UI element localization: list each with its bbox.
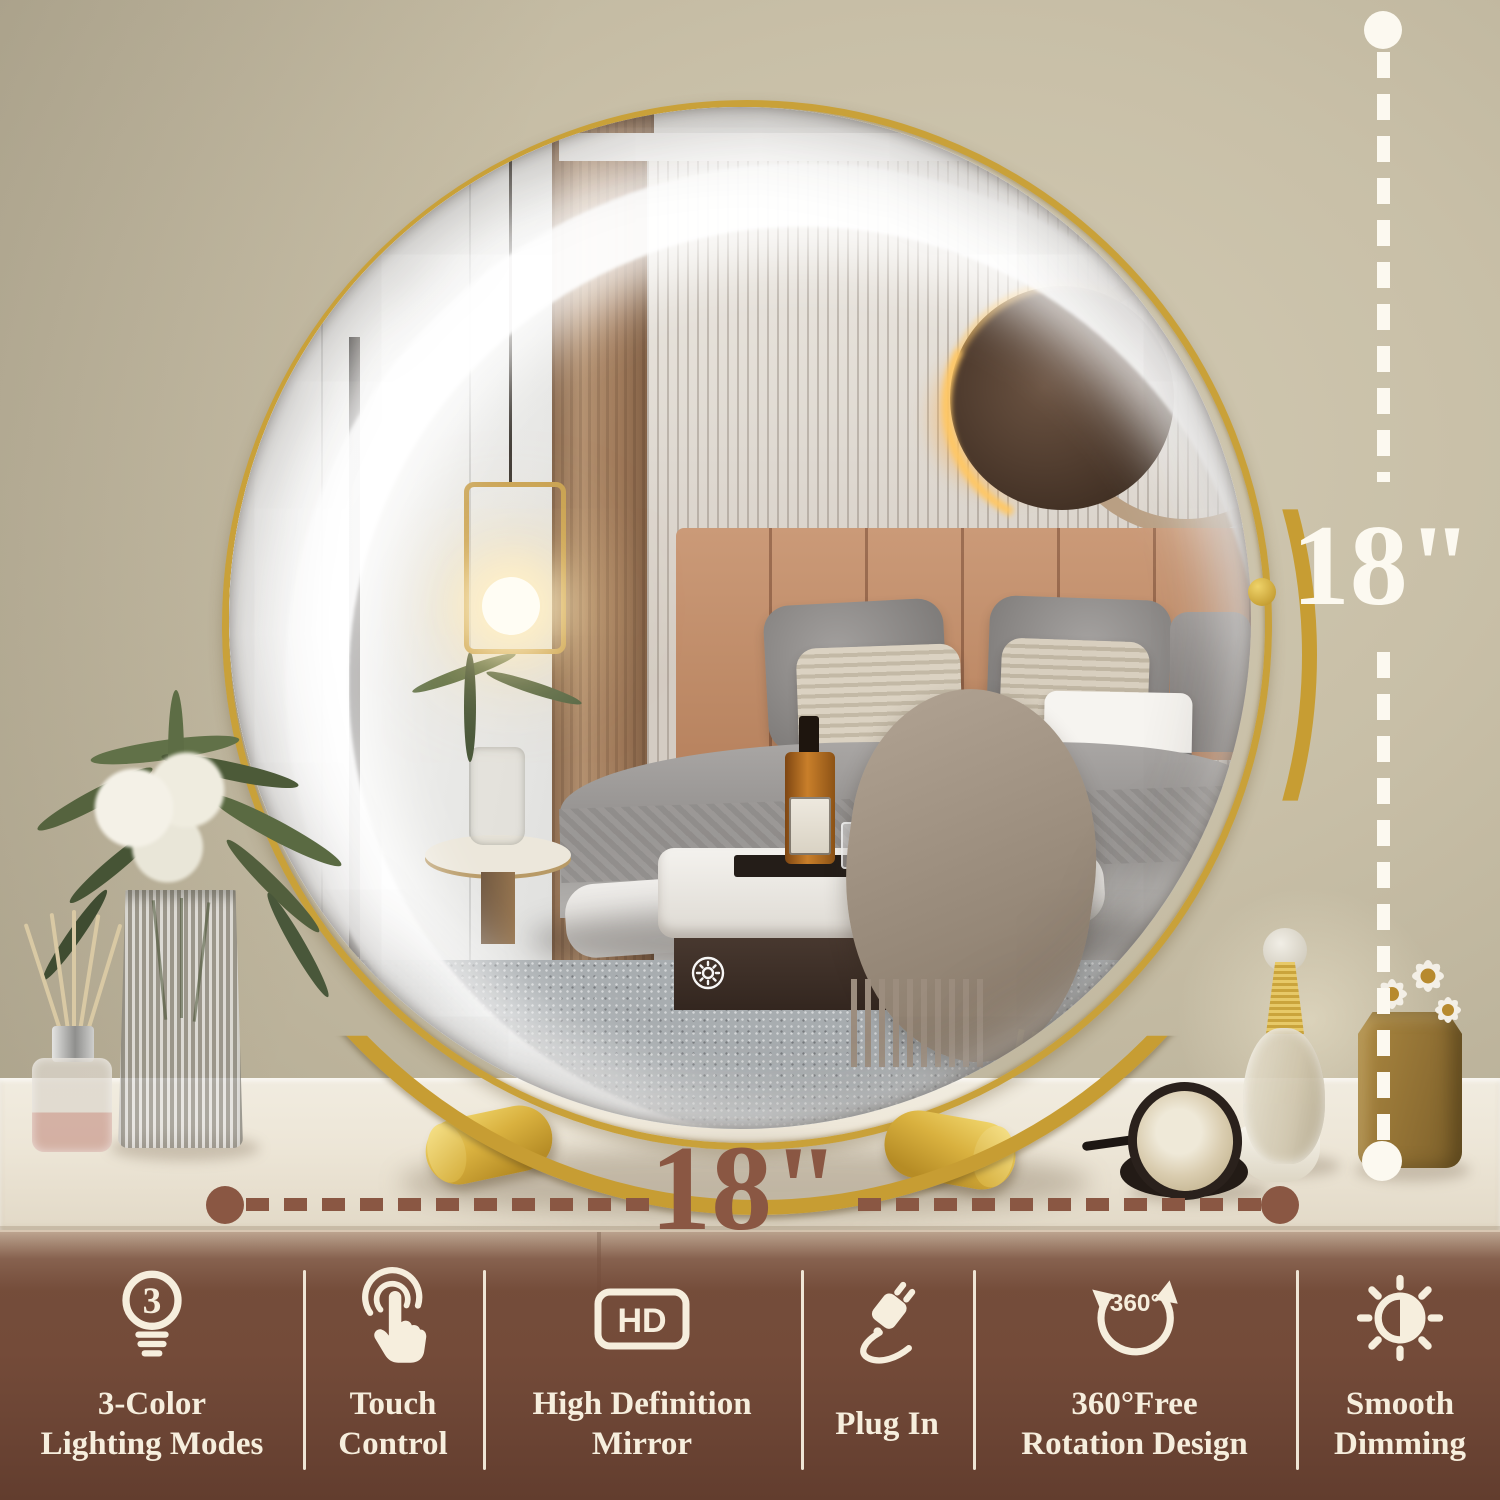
feature-divider xyxy=(483,1270,486,1470)
hd-text: HD xyxy=(617,1302,666,1340)
feature-touch-control: Touch Control xyxy=(311,1264,475,1492)
feature-label-line1: 3-Color xyxy=(41,1384,264,1424)
dimension-dash-bottom xyxy=(1377,652,1390,1140)
diffuser-reed xyxy=(72,910,76,1028)
bulb-3-modes-icon: 3 xyxy=(100,1264,204,1372)
dimension-endpoint-right xyxy=(1261,1186,1299,1224)
feature-label-line1: Plug In xyxy=(835,1404,939,1444)
bulb-count-text: 3 xyxy=(143,1281,162,1322)
feature-divider xyxy=(1296,1270,1299,1470)
feature-bar: 3 3-Color Lighting Modes Touch xyxy=(0,1232,1500,1500)
ribbed-glass-vase xyxy=(118,890,243,1148)
dimension-dash-top xyxy=(1377,52,1390,482)
feature-label-line1: Touch xyxy=(338,1384,447,1424)
dimension-endpoint-left xyxy=(206,1186,244,1224)
feature-plug-in: Plug In xyxy=(809,1264,965,1492)
power-plug-icon xyxy=(835,1264,939,1372)
feature-label-line2: Lighting Modes xyxy=(41,1424,264,1464)
glass-edge-shadow xyxy=(229,107,1251,1129)
reed-diffuser-jar xyxy=(32,1058,112,1152)
daisy-flowers xyxy=(1352,948,1470,1040)
rotation-degrees-text: 360° xyxy=(1109,1290,1160,1317)
touch-finger-icon xyxy=(341,1264,445,1372)
dimension-dash-left xyxy=(246,1198,652,1211)
flower-stem xyxy=(152,900,168,1020)
feature-divider xyxy=(303,1270,306,1470)
feature-label-line2: Dimming xyxy=(1334,1424,1466,1464)
feature-360-rotation: 360° 360°Free Rotation Design xyxy=(981,1264,1288,1492)
feature-label-line1: 360°Free xyxy=(1021,1384,1247,1424)
rotate-360-icon: 360° xyxy=(1079,1264,1191,1372)
flower-stem xyxy=(180,898,183,1018)
half-sun-dimming-icon xyxy=(1348,1264,1452,1372)
feature-label-line2: Rotation Design xyxy=(1021,1424,1247,1464)
feature-divider xyxy=(801,1270,804,1470)
feature-smooth-dimming: Smooth Dimming xyxy=(1304,1264,1496,1492)
dimension-dash-right xyxy=(858,1198,1262,1211)
feature-label-line2: Control xyxy=(338,1424,447,1464)
perfume-bottle xyxy=(1243,1028,1325,1164)
height-dimension-label: 18" xyxy=(1282,508,1482,624)
reflection-floor xyxy=(229,957,359,1129)
feature-label-line1: Smooth xyxy=(1334,1384,1466,1424)
white-flowers xyxy=(78,748,238,898)
feature-label-line1: High Definition xyxy=(532,1384,751,1424)
dimension-endpoint-bottom xyxy=(1362,1141,1402,1181)
diffuser-cap xyxy=(52,1026,94,1062)
mirror-glass xyxy=(229,107,1251,1129)
feature-label-line2: Mirror xyxy=(532,1424,751,1464)
hd-badge-icon: HD xyxy=(582,1264,702,1372)
dimension-endpoint-top xyxy=(1364,11,1402,49)
swivel-pivot xyxy=(1248,578,1276,606)
feature-divider xyxy=(973,1270,976,1470)
flower-stem xyxy=(193,902,211,1021)
product-infographic: 18" 18" 3 xyxy=(0,0,1500,1500)
feature-hd-mirror: HD High Definition Mirror xyxy=(491,1264,793,1492)
feature-3-color-lighting: 3 3-Color Lighting Modes xyxy=(8,1264,296,1492)
